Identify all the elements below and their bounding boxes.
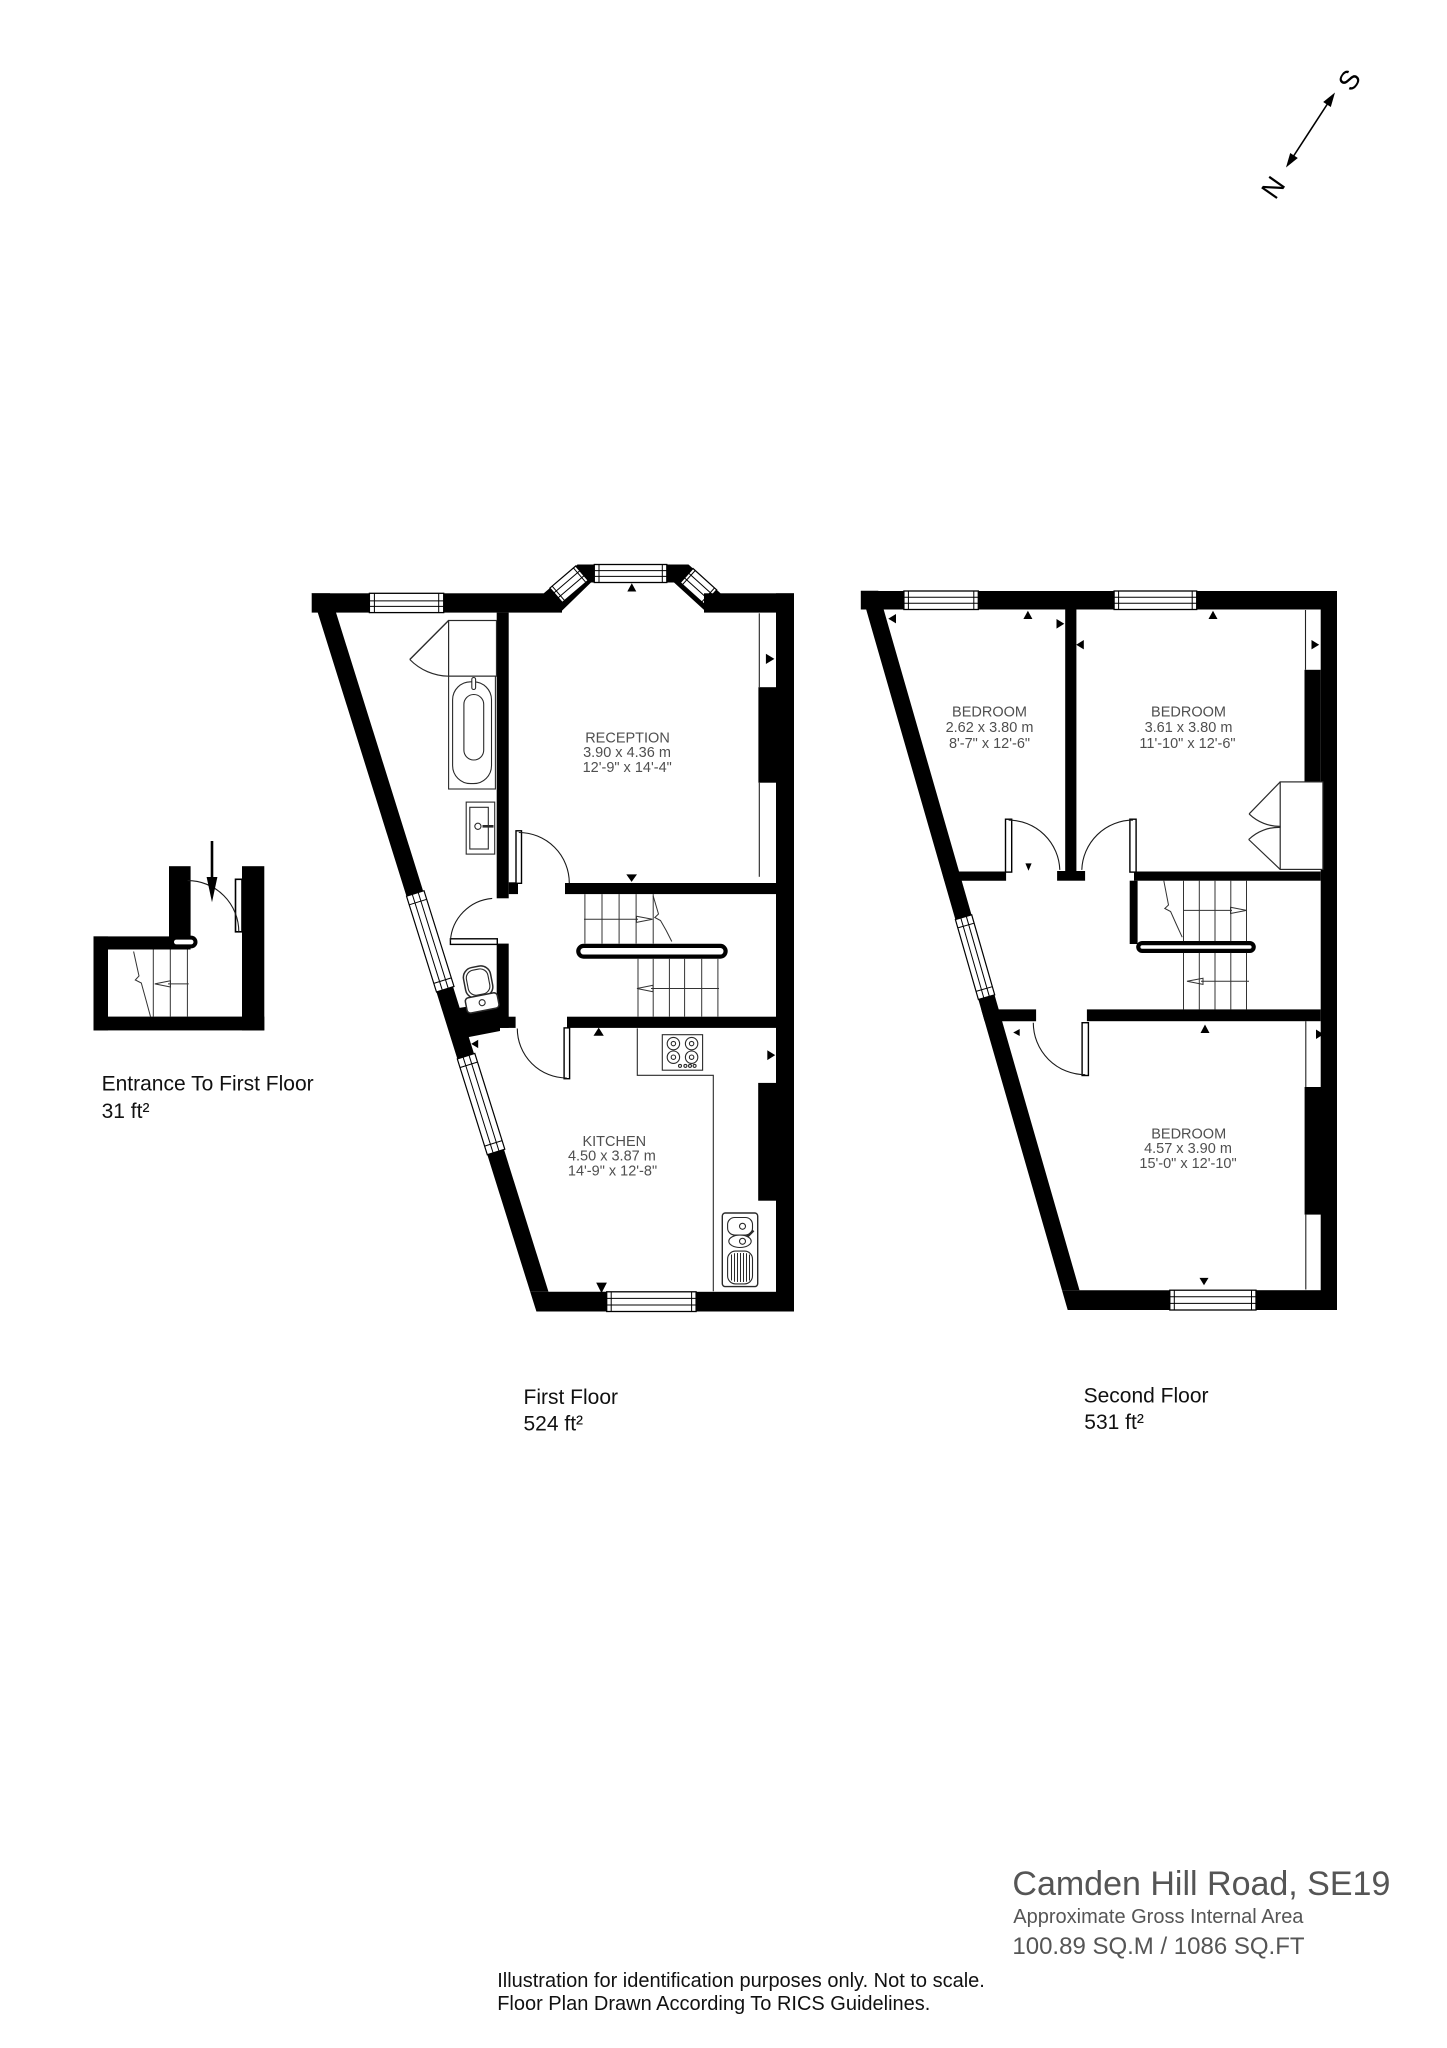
- svg-text:31 ft²: 31 ft²: [102, 1100, 150, 1123]
- svg-text:BEDROOM: BEDROOM: [1151, 1127, 1226, 1143]
- svg-text:4.57 x 3.90 m: 4.57 x 3.90 m: [1144, 1141, 1232, 1157]
- svg-text:8'-7" x 12'-6": 8'-7" x 12'-6": [949, 736, 1030, 752]
- svg-text:RECEPTION: RECEPTION: [585, 731, 670, 747]
- svg-text:First Floor: First Floor: [524, 1386, 619, 1409]
- svg-text:Illustration for identificatio: Illustration for identification purposes…: [497, 1970, 985, 1992]
- svg-text:12'-9" x 14'-4": 12'-9" x 14'-4": [583, 760, 672, 776]
- svg-text:100.89 SQ.M / 1086 SQ.FT: 100.89 SQ.M / 1086 SQ.FT: [1012, 1933, 1304, 1960]
- svg-text:BEDROOM: BEDROOM: [952, 705, 1027, 721]
- svg-text:524 ft²: 524 ft²: [524, 1412, 584, 1435]
- svg-text:11'-10" x 12'-6": 11'-10" x 12'-6": [1139, 736, 1235, 752]
- svg-text:14'-9" x 12'-8": 14'-9" x 12'-8": [568, 1163, 657, 1179]
- svg-text:4.50 x 3.87 m: 4.50 x 3.87 m: [568, 1149, 656, 1165]
- svg-text:Approximate Gross Internal Are: Approximate Gross Internal Area: [1013, 1906, 1304, 1928]
- svg-text:15'-0" x 12'-10": 15'-0" x 12'-10": [1139, 1156, 1236, 1172]
- svg-text:Floor Plan Drawn According To: Floor Plan Drawn According To RICS Guide…: [497, 1993, 930, 2015]
- svg-text:3.61 x 3.80 m: 3.61 x 3.80 m: [1145, 720, 1233, 736]
- svg-text:KITCHEN: KITCHEN: [582, 1134, 646, 1150]
- svg-text:Camden Hill Road, SE19: Camden Hill Road, SE19: [1012, 1865, 1390, 1903]
- svg-text:3.90 x 4.36 m: 3.90 x 4.36 m: [583, 745, 671, 761]
- svg-text:Entrance To First Floor: Entrance To First Floor: [102, 1073, 314, 1096]
- svg-text:BEDROOM: BEDROOM: [1151, 705, 1226, 721]
- svg-text:531 ft²: 531 ft²: [1084, 1411, 1144, 1434]
- svg-text:Second Floor: Second Floor: [1084, 1384, 1209, 1407]
- svg-text:2.62 x 3.80 m: 2.62 x 3.80 m: [946, 720, 1034, 736]
